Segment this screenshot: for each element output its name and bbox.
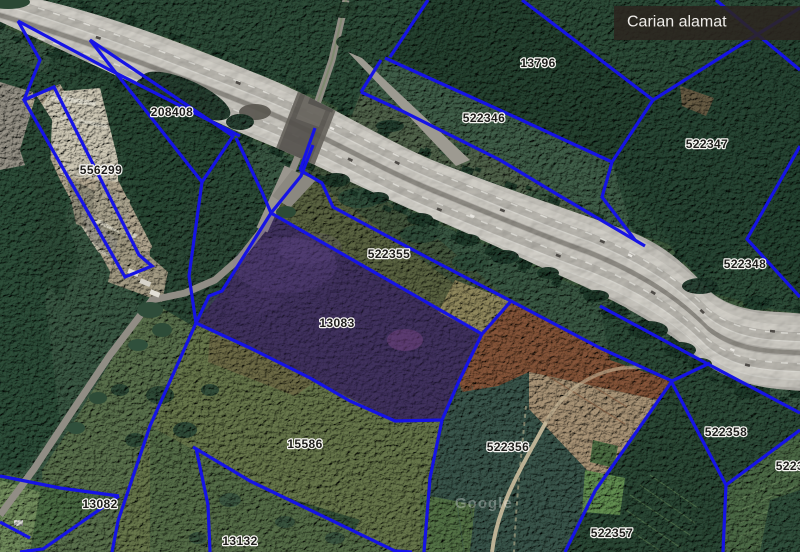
svg-text:13132: 13132 [222, 534, 257, 548]
svg-text:208408: 208408 [151, 105, 193, 119]
svg-text:522357: 522357 [591, 526, 633, 540]
svg-text:522346: 522346 [463, 111, 505, 125]
svg-text:522359: 522359 [776, 459, 800, 473]
svg-text:13082: 13082 [82, 497, 117, 511]
svg-text:13083: 13083 [319, 316, 354, 330]
svg-text:522348: 522348 [724, 257, 766, 271]
svg-text:15586: 15586 [287, 437, 322, 451]
svg-text:556299: 556299 [80, 163, 122, 177]
svg-text:522347: 522347 [686, 137, 728, 151]
svg-text:13796: 13796 [520, 56, 555, 70]
svg-text:522356: 522356 [487, 440, 529, 454]
svg-text:Google: Google [455, 495, 513, 512]
svg-text:Carian alamat: Carian alamat [627, 14, 727, 31]
svg-text:522358: 522358 [705, 425, 747, 439]
svg-text:522355: 522355 [368, 247, 410, 261]
